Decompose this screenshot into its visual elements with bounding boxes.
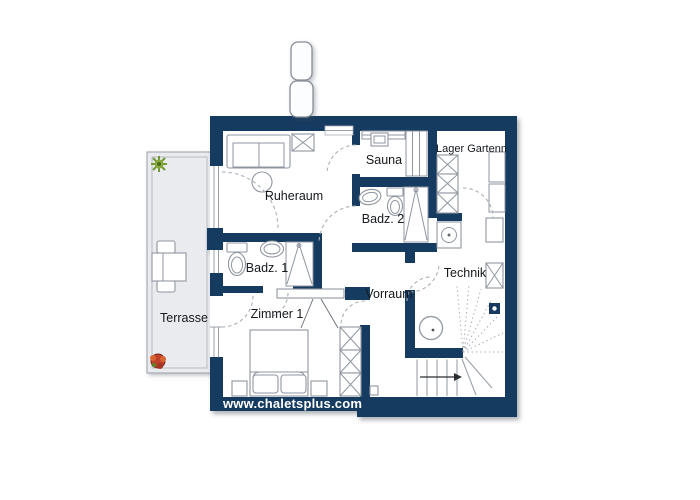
- dresser: [277, 289, 344, 298]
- room-label-badz2: Badz. 2: [362, 212, 404, 226]
- room-label-sauna: Sauna: [366, 153, 402, 167]
- sauna-heater: [371, 133, 388, 146]
- window-north-niche: [325, 126, 353, 135]
- room-label-zimmer1: Zimmer 1: [251, 307, 304, 321]
- window-zimmer1: [210, 327, 223, 357]
- storage-box-ruheraum: [292, 134, 314, 151]
- stair-column: [420, 317, 443, 340]
- nightstand-right: [311, 381, 327, 396]
- door-opening-zimmer-terrace: [210, 296, 223, 327]
- washing-machine: [437, 222, 461, 248]
- wardrobe-zimmer1: [340, 327, 361, 396]
- wall-outlet-marker: [489, 303, 500, 314]
- room-label-ruheraum: Ruheraum: [265, 189, 323, 203]
- terrace-table: [152, 253, 186, 281]
- room-label-technik: Technik: [444, 266, 487, 280]
- plant-icon: [151, 156, 167, 172]
- terrace-chair-bottom: [157, 281, 175, 292]
- website-label: www.chaletsplus.com: [222, 396, 362, 411]
- window-badz1: [210, 250, 223, 273]
- toilet-fixture-badz1: [227, 243, 247, 276]
- threshold-marker: [370, 386, 378, 395]
- room-label-vorraum: Vorraum: [365, 287, 412, 301]
- nightstand-left: [232, 381, 247, 396]
- sofa: [227, 135, 290, 168]
- terrace-chair-top: [157, 241, 175, 253]
- room-label-lager: Lager Gartenm: [436, 143, 510, 155]
- room-label-badz1: Badz. 1: [246, 261, 288, 275]
- window-terrace-door: [210, 166, 223, 228]
- appliance-box: [486, 218, 503, 242]
- sink-fixture-badz1: [261, 241, 284, 257]
- room-label-terrasse: Terrasse: [160, 311, 208, 325]
- bed: [250, 330, 308, 396]
- appliance-box-x: [486, 263, 503, 288]
- closet-lager: [437, 155, 458, 213]
- floorplan-canvas: Terrasse Ruheraum Sauna Badz. 2 Badz. 1 …: [0, 0, 700, 500]
- floorplan-drawing: Terrasse Ruheraum Sauna Badz. 2 Badz. 1 …: [0, 0, 700, 500]
